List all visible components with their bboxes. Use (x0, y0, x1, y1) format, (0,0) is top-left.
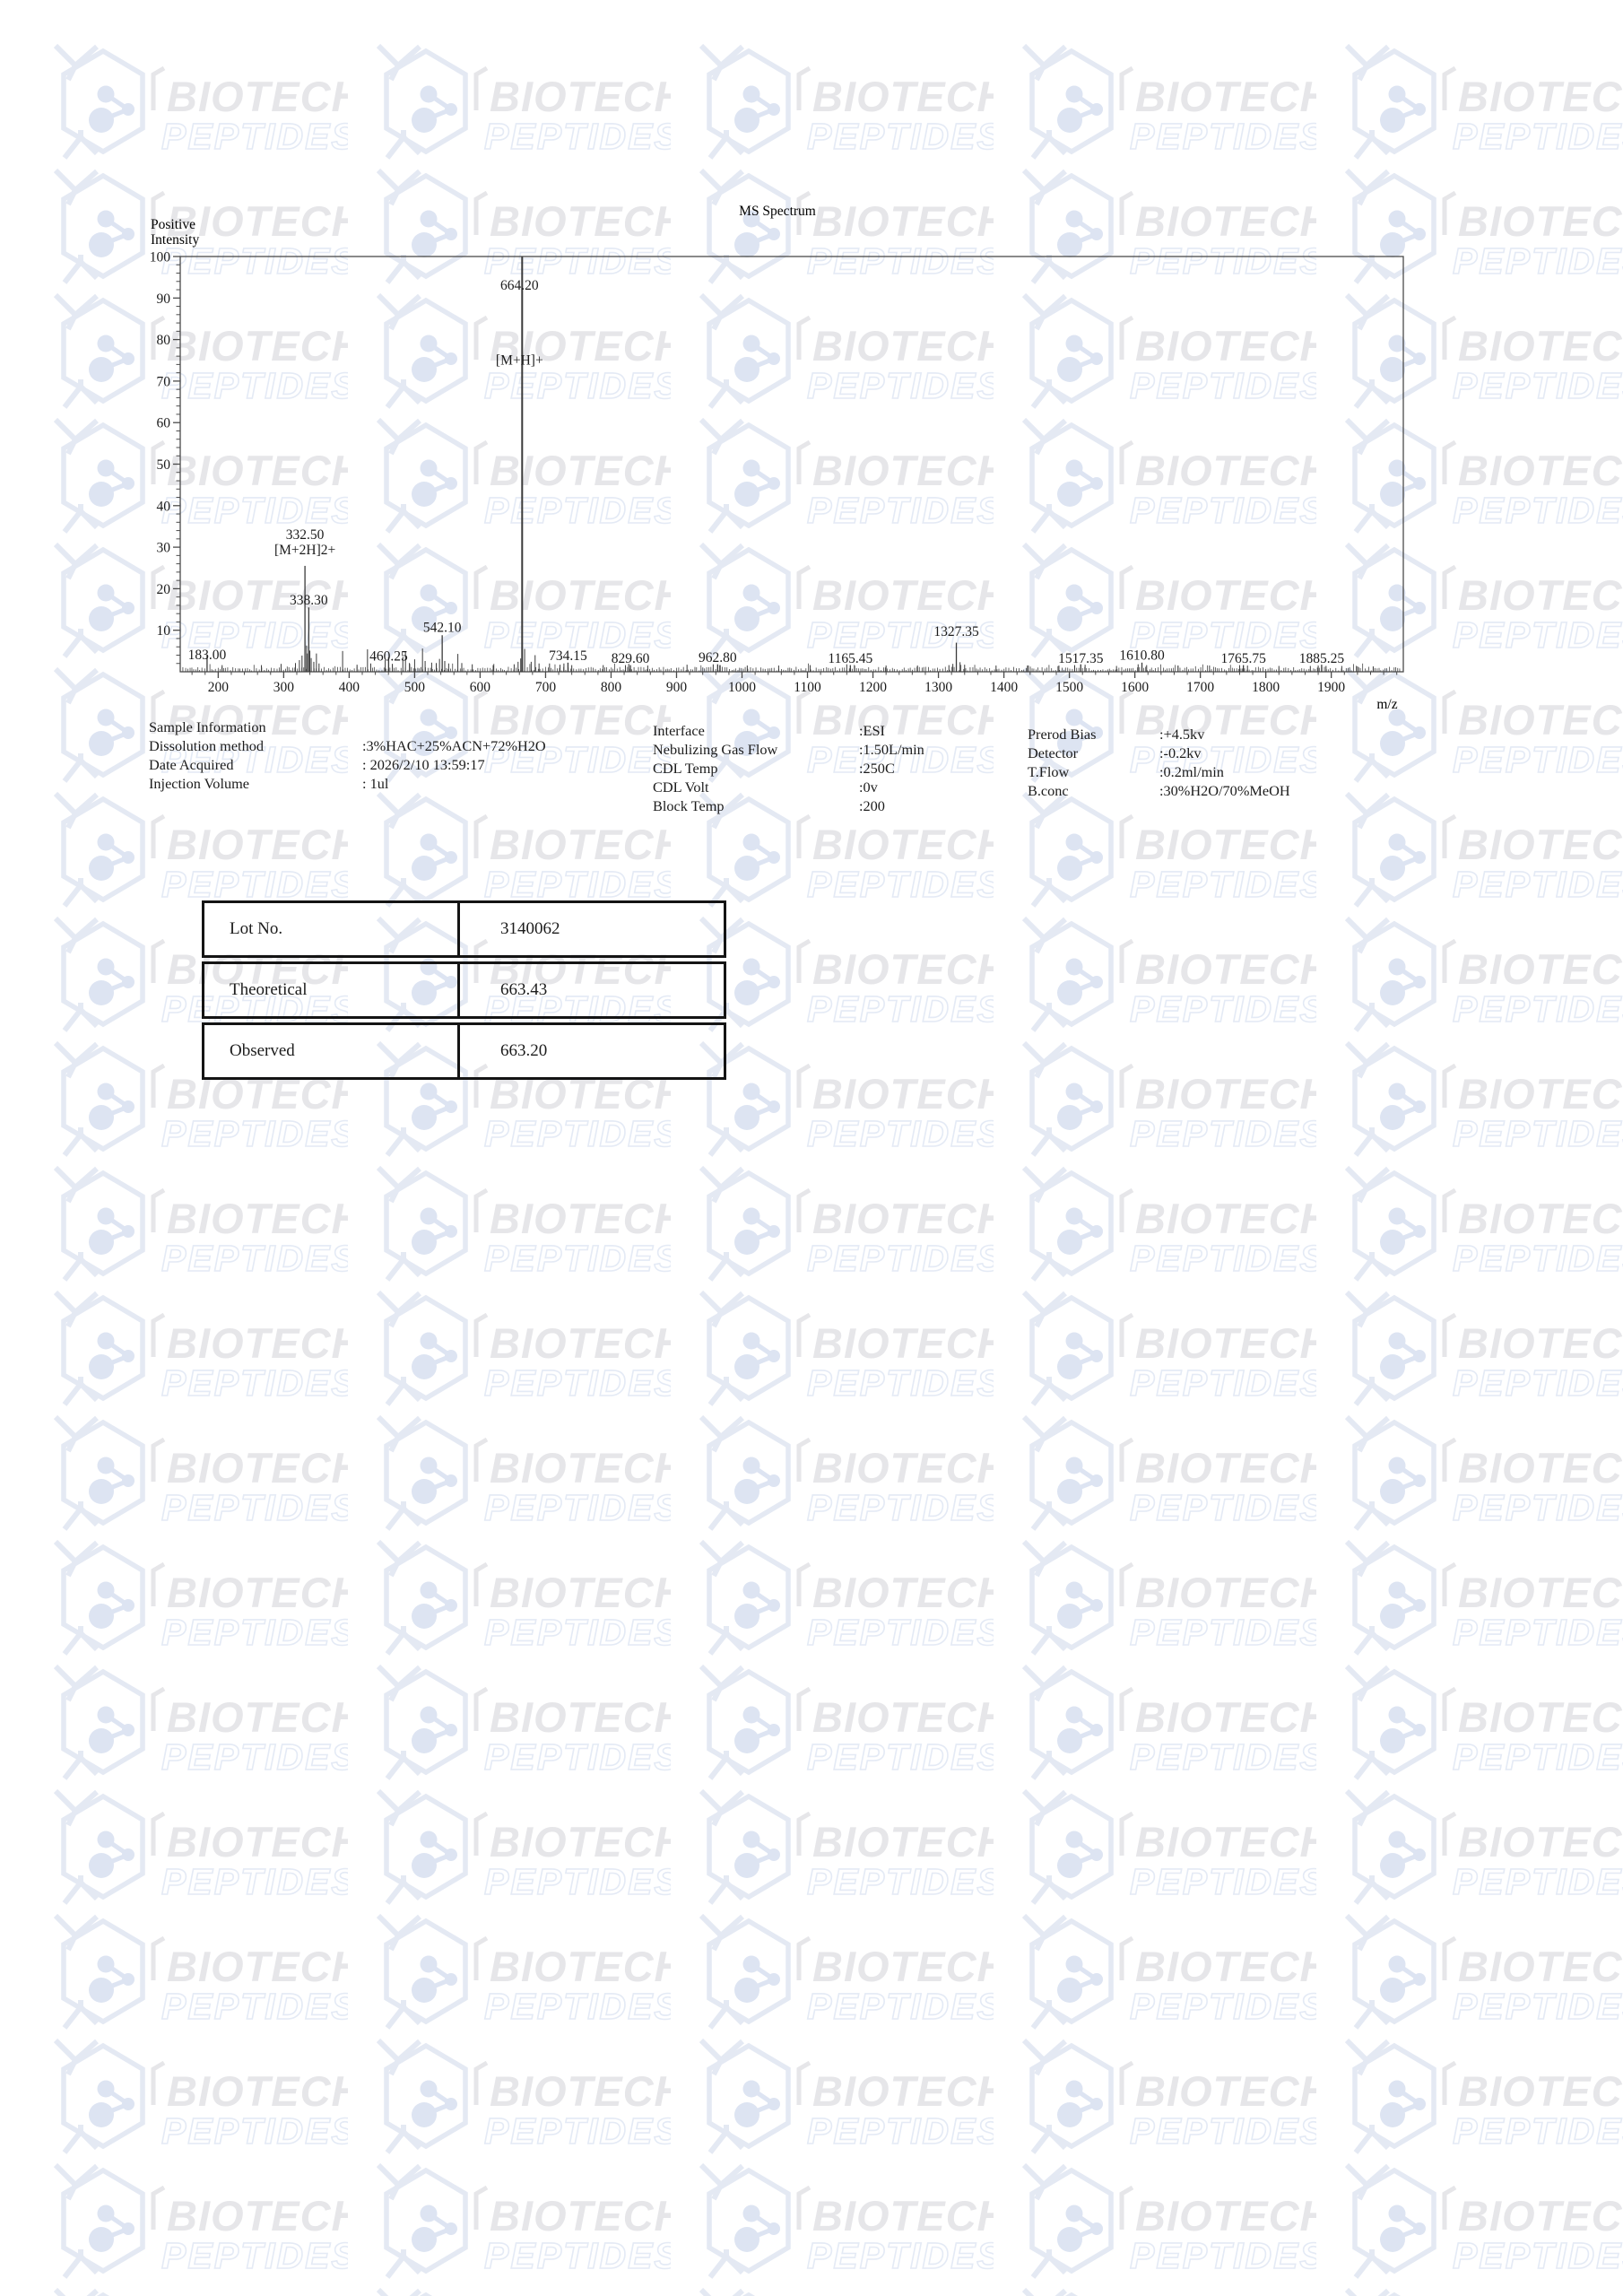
info-value: :ESI (859, 721, 885, 740)
peak-label: 1165.45 (828, 651, 872, 666)
y-tick-label: 100 (150, 250, 171, 265)
info-value: :0v (859, 778, 878, 796)
info-row: T.Flow:0.2ml/min (1028, 762, 1290, 781)
watermark-logo (1004, 2039, 1316, 2157)
y-tick-label: 90 (157, 291, 171, 307)
watermark-logo (1004, 1041, 1316, 1160)
peak-label: 1327.35 (933, 624, 979, 639)
table-row-label: Lot No. (202, 900, 460, 958)
info-label: Nebulizing Gas Flow (653, 740, 859, 759)
watermark-logo (36, 792, 348, 910)
watermark-logo (36, 1291, 348, 1409)
info-value: :30%H2O/70%MeOH (1159, 781, 1290, 800)
watermark-logo (1327, 792, 1623, 910)
x-tick-label: 600 (470, 680, 491, 695)
info-row: Interface:ESI (653, 721, 924, 740)
y-axis: 102030405060708090100 (150, 250, 180, 664)
info-label: Detector (1028, 744, 1159, 762)
y-axis-label-line2: Intensity (151, 232, 199, 248)
watermark-logo (1327, 1914, 1623, 2032)
peak-label: 962.80 (699, 650, 737, 665)
info-value: : 2026/2/10 13:59:17 (362, 755, 485, 774)
table-row-value: 663.43 (460, 961, 726, 1019)
info-value: :1.50L/min (859, 740, 924, 759)
table-row-label: Theoretical (202, 961, 460, 1019)
x-tick-label: 800 (601, 680, 622, 695)
watermark-logo (681, 1665, 994, 1783)
watermark-logo (359, 1665, 671, 1783)
info-value: :0.2ml/min (1159, 762, 1224, 781)
x-tick-label: 400 (339, 680, 360, 695)
x-tick-label: 1800 (1252, 680, 1280, 695)
peak-label: 542.10 (423, 621, 462, 636)
watermark-logo (359, 1540, 671, 1658)
watermark-logo (359, 1291, 671, 1409)
labeled-peaks: 183.00332.50[M+2H]2+338.30460.25542.1066… (188, 257, 1345, 672)
info-label: Interface (653, 721, 859, 740)
x-tick-label: 300 (273, 680, 295, 695)
x-tick-label: 1200 (859, 680, 887, 695)
info-label: Date Acquired (149, 755, 362, 774)
table-row: Theoretical663.43 (202, 961, 726, 1019)
watermark-logo (1327, 1166, 1623, 1284)
x-tick-label: 1600 (1121, 680, 1149, 695)
y-tick-label: 50 (157, 457, 171, 473)
watermark-logo (1327, 1540, 1623, 1658)
peak-label: 1610.80 (1119, 648, 1165, 664)
watermark-logo (1004, 1914, 1316, 2032)
plot-frame (180, 257, 1403, 672)
watermark-logo (359, 1166, 671, 1284)
info-row: Block Temp:200 (653, 796, 924, 815)
watermark-logo (681, 2288, 994, 2296)
watermark-logo (681, 2163, 994, 2282)
info-value: :250C (859, 759, 895, 778)
watermark-logo (359, 1789, 671, 1908)
info-label: T.Flow (1028, 762, 1159, 781)
info-value: :+4.5kv (1159, 725, 1204, 744)
peak-label: 332.50 (286, 527, 325, 543)
info-label: Block Temp (653, 796, 859, 815)
watermark-logo (36, 1789, 348, 1908)
x-tick-label: 500 (404, 680, 426, 695)
sample-info-header: Sample Information (149, 717, 546, 736)
watermark-logo (1004, 1415, 1316, 1534)
y-tick-label: 40 (157, 499, 171, 514)
info-label: CDL Temp (653, 759, 859, 778)
watermark-logo (1327, 1041, 1623, 1160)
ms-spectrum-chart: MS Spectrum Positive Intensity m/z 10203… (126, 196, 1435, 716)
x-tick-label: 1400 (990, 680, 1018, 695)
info-label: Dissolution method (149, 736, 362, 755)
watermark-logo (681, 1540, 994, 1658)
y-tick-label: 80 (157, 333, 171, 348)
watermark-logo (1327, 44, 1623, 162)
info-row: CDL Volt:0v (653, 778, 924, 796)
watermark-logo (36, 2288, 348, 2296)
x-tick-label: 1500 (1055, 680, 1083, 695)
peak-label: 1765.75 (1220, 651, 1266, 666)
watermark-logo (36, 1914, 348, 2032)
peak-label: 829.60 (612, 651, 650, 666)
watermark-logo (681, 1914, 994, 2032)
y-tick-label: 10 (157, 623, 171, 639)
watermark-logo (1004, 792, 1316, 910)
info-label: B.conc (1028, 781, 1159, 800)
chart-title: MS Spectrum (739, 204, 816, 219)
watermark-logo (359, 2288, 671, 2296)
peak-label: 1517.35 (1058, 651, 1104, 666)
watermark-logo (359, 1914, 671, 2032)
watermark-logo (1004, 1291, 1316, 1409)
info-label: Injection Volume (149, 774, 362, 793)
x-tick-label: 1900 (1317, 680, 1345, 695)
x-tick-label: 1100 (794, 680, 821, 695)
watermark-logo (681, 1789, 994, 1908)
watermark-logo (36, 2039, 348, 2157)
watermark-logo (359, 2039, 671, 2157)
info-label: Prerod Bias (1028, 725, 1159, 744)
watermark-logo (36, 2163, 348, 2282)
info-value: :-0.2kv (1159, 744, 1202, 762)
table-row: Lot No.3140062 (202, 900, 726, 958)
results-table: Lot No.3140062Theoretical663.43Observed6… (202, 900, 726, 1083)
watermark-logo (36, 1665, 348, 1783)
info-label: CDL Volt (653, 778, 859, 796)
watermark-logo (681, 2039, 994, 2157)
watermark-logo (36, 44, 348, 162)
info-value: : 1ul (362, 774, 388, 793)
peak-label: 183.00 (188, 648, 227, 663)
info-value: :3%HAC+25%ACN+72%H2O (362, 736, 546, 755)
peak-annotation: [M+H]+ (496, 352, 543, 368)
info-group-2: Interface:ESINebulizing Gas Flow:1.50L/m… (653, 721, 924, 815)
table-row-label: Observed (202, 1022, 460, 1080)
x-tick-label: 1300 (924, 680, 952, 695)
watermark-logo (1327, 1291, 1623, 1409)
info-group-1: Sample InformationDissolution method:3%H… (149, 717, 546, 793)
peak-label: 1885.25 (1299, 651, 1345, 666)
y-tick-label: 60 (157, 416, 171, 431)
watermark-logo (359, 792, 671, 910)
watermark-logo (1327, 2039, 1623, 2157)
info-group-3: Prerod Bias:+4.5kvDetector:-0.2kvT.Flow:… (1028, 725, 1290, 800)
x-tick-label: 1700 (1186, 680, 1214, 695)
peak-annotation: [M+2H]2+ (274, 543, 335, 558)
watermark-logo (359, 44, 671, 162)
x-tick-label: 900 (666, 680, 688, 695)
y-tick-label: 30 (157, 541, 171, 556)
watermark-logo (1327, 2163, 1623, 2282)
watermark-logo (1004, 2163, 1316, 2282)
watermark-logo (1327, 1665, 1623, 1783)
watermark-logo (1004, 917, 1316, 1035)
baseline-noise (183, 664, 1400, 672)
watermark-logo (681, 1415, 994, 1534)
watermark-logo (36, 1540, 348, 1658)
peak-label: 460.25 (369, 648, 408, 664)
watermark-logo (359, 2163, 671, 2282)
watermark-logo (1004, 1789, 1316, 1908)
x-tick-label: 1000 (728, 680, 756, 695)
watermark-logo (1004, 1665, 1316, 1783)
watermark-logo (681, 1041, 994, 1160)
peak-label: 734.15 (549, 648, 587, 664)
peak-label: 338.30 (290, 593, 328, 608)
y-axis-label-line1: Positive (151, 217, 195, 232)
peak-label: 664.20 (500, 278, 539, 293)
table-row: Observed663.20 (202, 1022, 726, 1080)
info-row: Nebulizing Gas Flow:1.50L/min (653, 740, 924, 759)
x-tick-label: 700 (535, 680, 557, 695)
info-row: CDL Temp:250C (653, 759, 924, 778)
y-tick-label: 20 (157, 582, 171, 597)
watermark-logo (1004, 2288, 1316, 2296)
watermark-logo (36, 1166, 348, 1284)
watermark-logo (681, 917, 994, 1035)
info-row: B.conc:30%H2O/70%MeOH (1028, 781, 1290, 800)
spectrum-plot: 1020304050607080901002003004005006007008… (150, 250, 1403, 696)
watermark-logo (359, 1415, 671, 1534)
info-row: Injection Volume: 1ul (149, 774, 546, 793)
document-page: BIOTECH PEPTIDES MS Spectrum Positive In… (0, 0, 1623, 2296)
watermark-logo (1327, 1415, 1623, 1534)
watermark-logo (1004, 44, 1316, 162)
watermark-logo (681, 1166, 994, 1284)
watermark-logo (681, 44, 994, 162)
info-row: Dissolution method:3%HAC+25%ACN+72%H2O (149, 736, 546, 755)
watermark-logo (1327, 917, 1623, 1035)
info-row: Detector:-0.2kv (1028, 744, 1290, 762)
info-row: Date Acquired: 2026/2/10 13:59:17 (149, 755, 546, 774)
watermark-logo (1004, 1166, 1316, 1284)
watermark-logo (36, 1415, 348, 1534)
watermark-logo (1004, 1540, 1316, 1658)
y-tick-label: 70 (157, 374, 171, 389)
x-axis: 2003004005006007008009001000110012001300… (192, 672, 1397, 695)
watermark-logo (1327, 1789, 1623, 1908)
info-row: Prerod Bias:+4.5kv (1028, 725, 1290, 744)
x-tick-label: 200 (208, 680, 230, 695)
info-value: :200 (859, 796, 885, 815)
x-axis-unit-label: m/z (1376, 697, 1397, 712)
watermark-logo (681, 1291, 994, 1409)
table-row-value: 3140062 (460, 900, 726, 958)
watermark-logo (1327, 2288, 1623, 2296)
table-row-value: 663.20 (460, 1022, 726, 1080)
